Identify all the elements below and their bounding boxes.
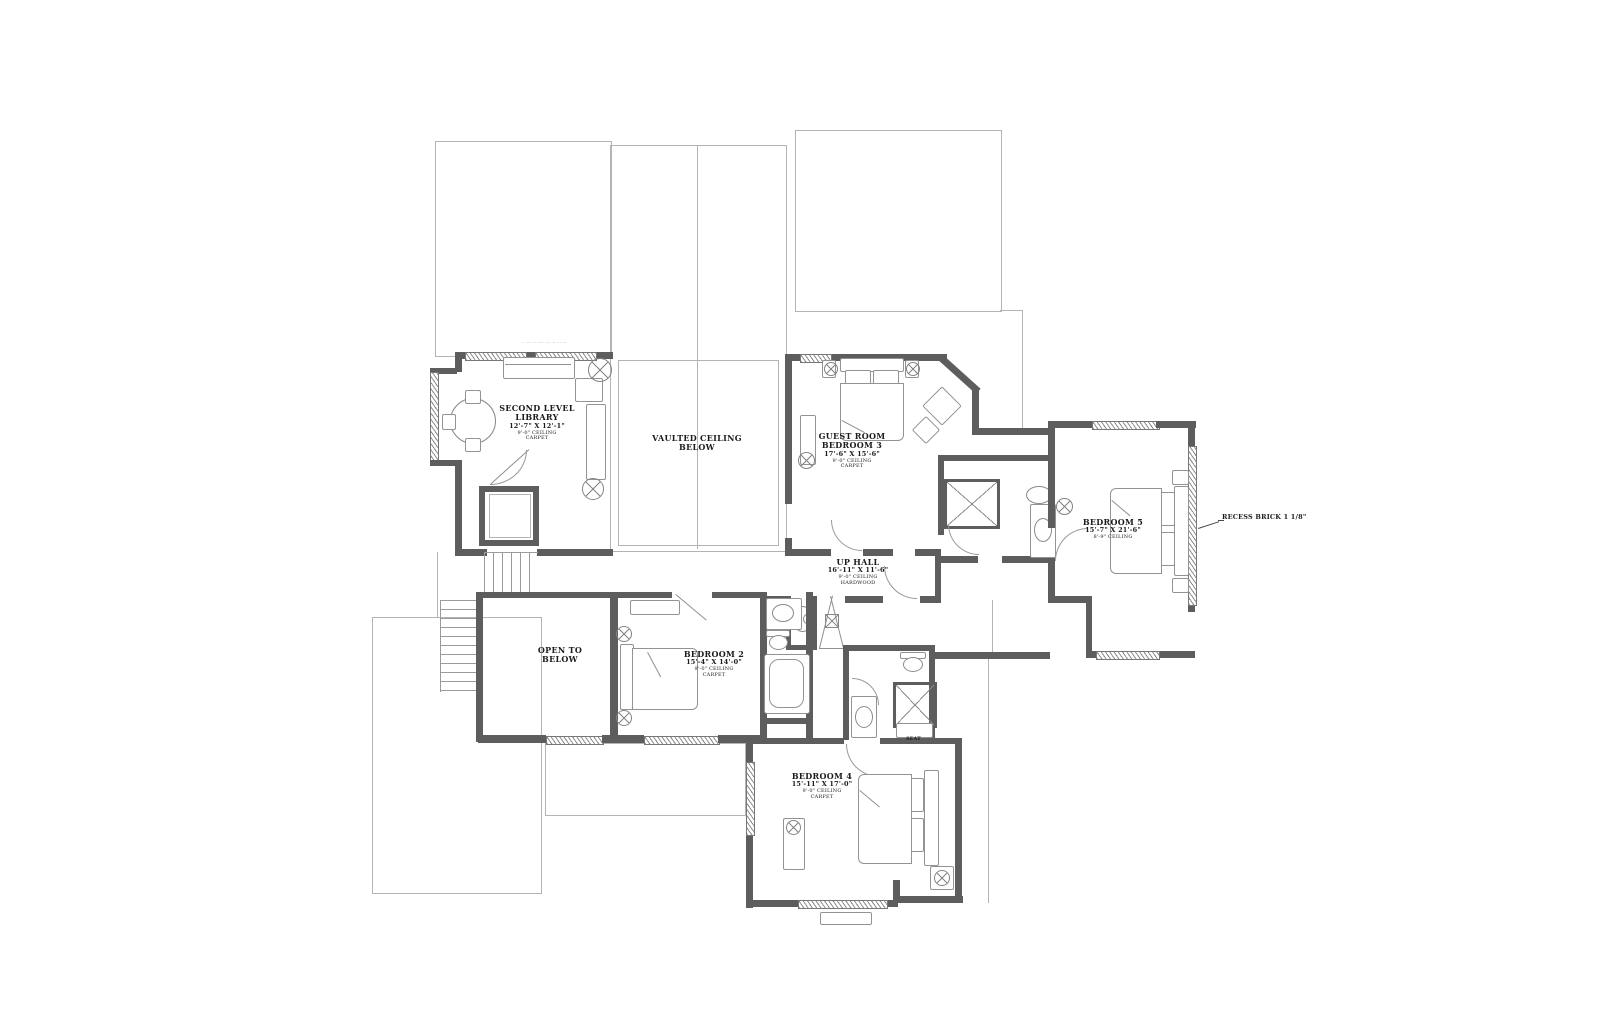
seat-text: SEAT xyxy=(906,736,921,742)
room-label-open-below: OPEN TO BELOW xyxy=(520,646,600,665)
door-arc xyxy=(852,678,879,705)
wall-segment xyxy=(845,596,883,603)
wall-segment xyxy=(476,592,483,742)
wall-segment xyxy=(430,460,457,466)
ceiling-fan-icon xyxy=(582,478,604,500)
bathtub-inner xyxy=(769,659,804,708)
chair xyxy=(465,390,481,404)
bed-headboard xyxy=(1174,486,1189,576)
wall-segment xyxy=(955,738,962,903)
wall-segment xyxy=(478,592,610,598)
door-arc xyxy=(831,520,862,551)
attic-access-icon xyxy=(825,614,839,628)
leader-line xyxy=(1198,521,1219,529)
floor-plan-drawing: SEAT SECOND LEVEL LIBRARY 12'-7" X 12'-1… xyxy=(0,0,1600,1035)
stairs xyxy=(440,600,480,692)
room-floor: CARPET xyxy=(672,673,756,679)
wall-segment xyxy=(843,645,849,740)
room-name: BELOW xyxy=(645,443,749,452)
light-icon xyxy=(616,710,632,726)
nightstand xyxy=(1172,470,1189,485)
wall-segment xyxy=(863,549,893,556)
wall-segment xyxy=(893,896,963,903)
door-leaf xyxy=(675,594,706,620)
elevator-wall xyxy=(479,486,485,546)
elevator-wall xyxy=(533,486,539,546)
door-arc xyxy=(948,524,979,555)
room-floor: CARPET xyxy=(800,464,904,470)
light-icon xyxy=(934,870,950,886)
room-label-bedroom2: BEDROOM 2 15'-4" X 14'-0" 9'-0" CEILING … xyxy=(672,650,756,679)
room-label-library: SECOND LEVEL LIBRARY 12'-7" X 12'-1" 9'-… xyxy=(492,404,582,442)
elevator-cab xyxy=(489,494,531,538)
nightstand xyxy=(1172,578,1189,593)
roof-outline xyxy=(988,655,989,903)
chair xyxy=(442,414,456,430)
light-icon xyxy=(616,626,632,642)
room-floor: CARPET xyxy=(772,795,872,801)
sink xyxy=(855,706,873,728)
room-ceiling: 8'-9" CEILING xyxy=(1063,535,1163,541)
attic-stair-line xyxy=(819,648,845,649)
wall-segment xyxy=(935,652,1050,659)
window xyxy=(746,762,755,836)
wall-segment xyxy=(1156,421,1196,428)
wall-segment xyxy=(938,455,1052,461)
wall-segment xyxy=(1048,428,1055,528)
seat-label: SEAT xyxy=(896,726,931,745)
console-table xyxy=(586,404,606,480)
window xyxy=(546,736,604,745)
closet-divider xyxy=(992,600,993,652)
lamp-icon xyxy=(824,362,838,376)
wall-segment xyxy=(972,428,1052,435)
wall-segment xyxy=(746,738,844,744)
room-label-bedroom4: BEDROOM 4 15'-11" X 17'-0" 9'-0" CEILING… xyxy=(772,772,872,801)
elevator-wall xyxy=(479,540,539,546)
wall-segment xyxy=(935,549,941,603)
stairs xyxy=(484,552,538,596)
recess-brick-note: RECESS BRICK 1 1/8" xyxy=(1222,513,1306,521)
wall-segment xyxy=(762,718,812,724)
window xyxy=(1092,421,1160,430)
room-label-guest: GUEST ROOM BEDROOM 3 17'-6" X 15'-6" 9'-… xyxy=(800,432,904,470)
wall-segment xyxy=(455,460,462,556)
door-arc xyxy=(490,450,527,485)
wall-segment xyxy=(1048,421,1096,428)
sink xyxy=(772,604,794,622)
window xyxy=(1188,446,1197,606)
dresser xyxy=(630,600,680,615)
window xyxy=(1096,651,1160,660)
wall-segment xyxy=(610,592,672,598)
room-label-vaulted: VAULTED CEILING BELOW xyxy=(645,434,749,453)
toilet xyxy=(769,635,788,650)
window xyxy=(798,900,888,909)
bed-headboard xyxy=(924,770,939,866)
roof-outline xyxy=(795,130,1002,312)
chair xyxy=(465,438,481,452)
wall-segment xyxy=(455,549,487,556)
room-name: BELOW xyxy=(520,655,600,664)
wall-segment xyxy=(1086,596,1092,658)
roof-outline xyxy=(545,743,746,816)
sofa-cushion-line xyxy=(505,364,571,365)
room-label-bedroom5: BEDROOM 5 15'-7" X 21'-6" 8'-9" CEILING xyxy=(1063,518,1163,541)
wall-segment xyxy=(785,354,792,504)
window xyxy=(644,736,720,745)
room-label-uphall: UP HALL 16'-11" X 11'-6" 9'-0" CEILING H… xyxy=(818,558,898,587)
sofa xyxy=(503,357,575,379)
room-floor: HARDWOOD xyxy=(818,581,898,587)
vault-opening-outline xyxy=(618,360,779,546)
window-seat xyxy=(820,912,872,925)
roof-outline xyxy=(1022,310,1023,428)
lamp-icon xyxy=(906,362,920,376)
light-icon xyxy=(786,820,801,835)
wall-segment xyxy=(478,735,546,743)
stair-wall-line xyxy=(437,552,438,618)
wall-segment xyxy=(785,549,831,556)
bay-window xyxy=(430,372,439,464)
ceiling-fan-icon xyxy=(588,358,612,382)
toilet xyxy=(903,657,923,672)
roof-outline xyxy=(435,141,612,357)
wall-segment xyxy=(602,735,644,743)
wall-segment xyxy=(712,592,760,598)
illegible-note: ·· ····· ··· ······ ···· ··· ·· ····· xyxy=(508,342,580,346)
light-icon xyxy=(1056,498,1073,515)
wall-segment xyxy=(537,549,613,556)
wall-segment xyxy=(938,556,978,563)
shower xyxy=(944,479,1000,529)
elevator-wall xyxy=(479,486,539,492)
wall-segment xyxy=(843,645,935,651)
room-floor: CARPET xyxy=(492,436,582,442)
roof-outline xyxy=(1000,310,1022,311)
shower xyxy=(893,682,937,728)
